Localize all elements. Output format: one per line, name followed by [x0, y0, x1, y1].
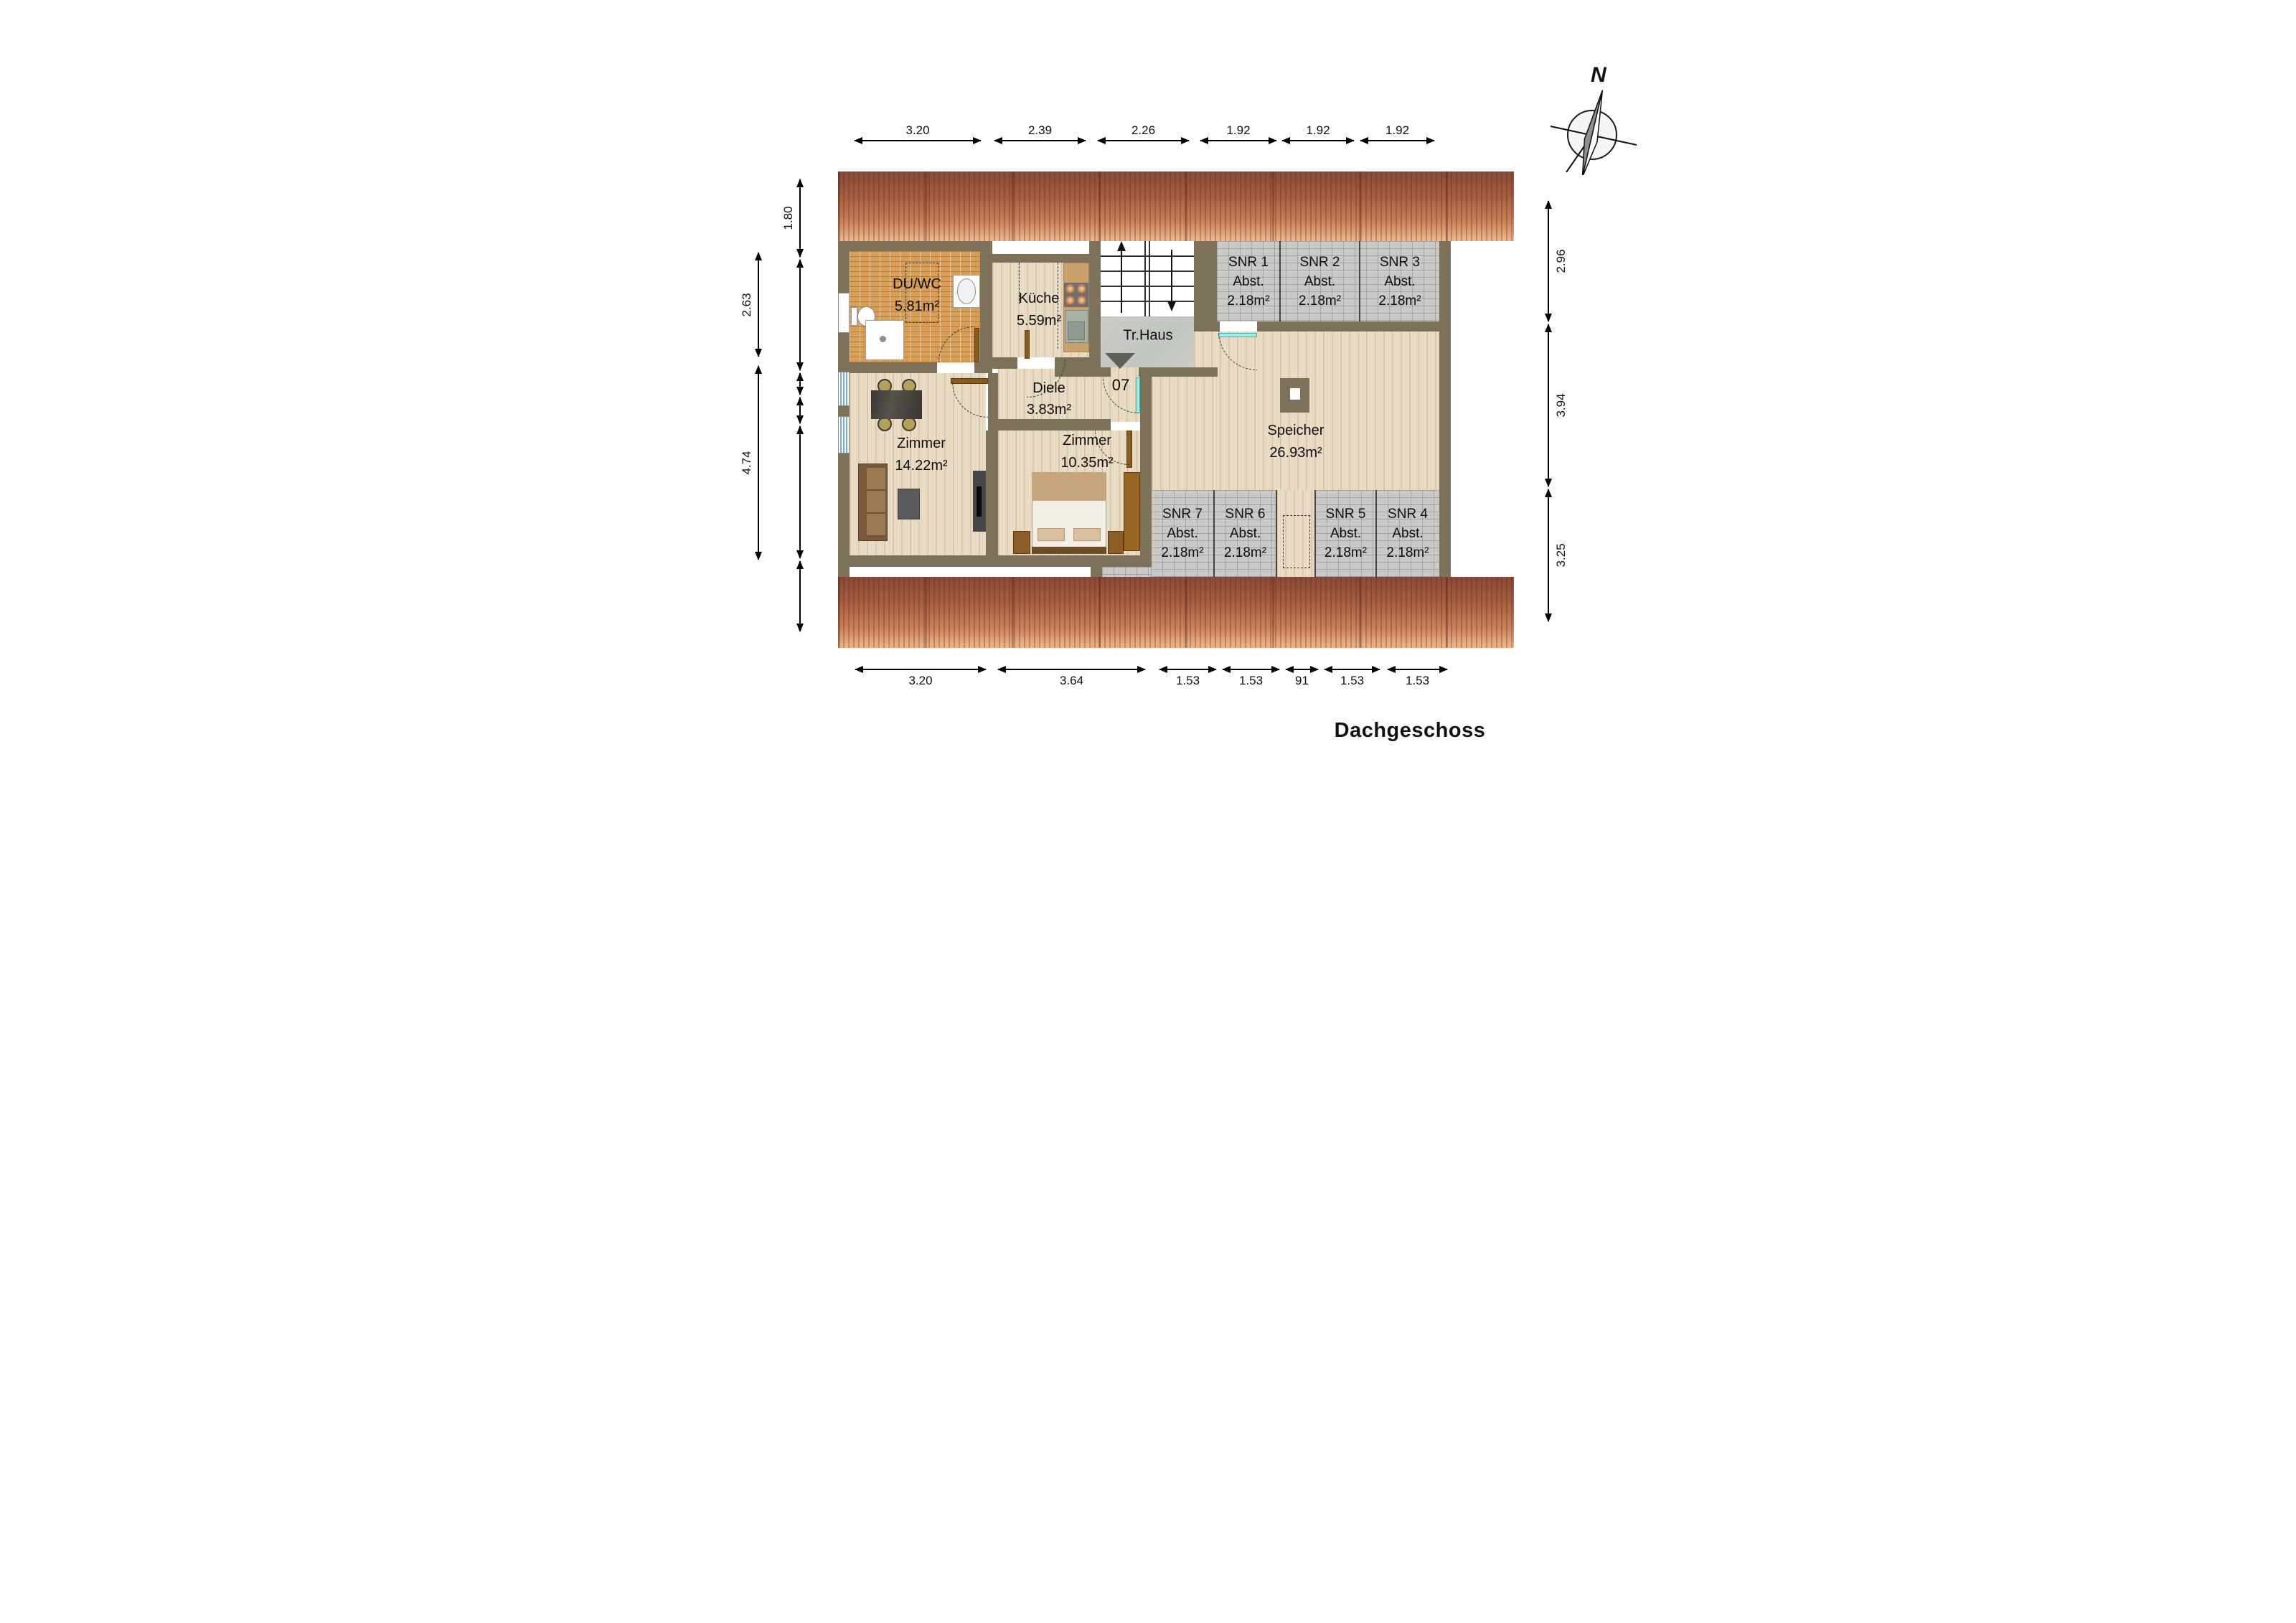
shower-drain [880, 336, 886, 342]
wall-duwc-bottom-a [838, 362, 937, 373]
stove-burner [1065, 284, 1075, 293]
stair-up-arrow-line [1121, 250, 1122, 313]
room-name: DU/WC [893, 273, 941, 296]
wall-stair-bottom-a [1089, 367, 1111, 377]
wall-outer-right [1439, 241, 1451, 577]
dim-bottom-2: 3.64 [998, 669, 1145, 670]
stair-tread-line [1101, 301, 1194, 302]
wall-duwc-right [980, 241, 992, 362]
room-area: 5.59m² [1017, 310, 1061, 332]
chimney-flue [1290, 388, 1300, 400]
wardrobe [1124, 472, 1140, 551]
chair [902, 417, 916, 431]
speicher-corridor-dashed [1283, 515, 1310, 568]
dim-value: 2.96 [1554, 249, 1568, 273]
bed-pillow [1073, 528, 1101, 541]
dim-top-4: 1.92 [1200, 140, 1276, 141]
snr1-label: SNR 1 Abst. 2.18m² [1217, 241, 1280, 321]
wall-stair-right [1194, 241, 1217, 331]
dim-top-2: 2.39 [994, 140, 1086, 141]
wall-kueche-bottom-a [992, 357, 1017, 369]
dim-value: 3.20 [908, 674, 932, 688]
wall-outer-left [838, 241, 850, 577]
room-name: Zimmer [895, 433, 947, 455]
room-label-trhaus: Tr.Haus [1123, 325, 1172, 347]
wall-top-left [838, 241, 992, 251]
snr-type: Abst. [1230, 524, 1261, 543]
room-area: 10.35m² [1060, 452, 1113, 474]
wall-kueche-top [992, 254, 1089, 263]
wall-zimmer-mid [986, 431, 998, 567]
speicher-west-arm-floor [1152, 377, 1217, 490]
dim-value: 91 [1295, 674, 1309, 688]
wall-zimmer-bottom [838, 555, 1152, 567]
roof-band-bottom [838, 577, 1514, 648]
sofa-cushions [867, 468, 885, 537]
wall-duwc-bottom-b [974, 362, 992, 373]
wall-kueche-stair [1089, 241, 1101, 377]
dim-left-inner-2 [799, 260, 801, 370]
dim-value: 1.53 [1340, 674, 1364, 688]
room-label-speicher: Speicher 26.93m² [1268, 420, 1325, 464]
stair-up-arrow-head [1117, 241, 1126, 251]
snr4-label: SNR 4 Abst. 2.18m² [1376, 490, 1439, 577]
apartment-number-label: 07 [1112, 376, 1129, 395]
wall-stair-bottom-b [1139, 367, 1218, 377]
room-label-diele: Diele 3.83m² [1027, 377, 1071, 420]
stair-down-arrow-head [1167, 301, 1176, 311]
snr-name: SNR 2 [1300, 253, 1340, 272]
snr-name: SNR 1 [1228, 253, 1269, 272]
under-roof-strip-bottom-left [850, 567, 1091, 577]
snr7-label: SNR 7 Abst. 2.18m² [1151, 490, 1214, 577]
stair-treads [1101, 241, 1194, 316]
dim-value: 2.39 [1028, 123, 1052, 138]
bed-pillow [1038, 528, 1065, 541]
dim-right-2: 3.94 [1548, 324, 1549, 486]
dim-left-inner-5 [799, 426, 801, 558]
wall-zimmer2-top [988, 419, 1111, 431]
dim-left-outer-1: 2.63 [758, 253, 759, 357]
dim-bottom-4: 1.53 [1223, 669, 1279, 670]
snr-area: 2.18m² [1227, 291, 1269, 311]
wall-snr1-bottom-a [1217, 321, 1220, 331]
dim-left-inner-4 [799, 397, 801, 423]
kueche-door-leaf [1025, 330, 1030, 359]
dim-value: 1.53 [1239, 674, 1263, 688]
tv-screen [977, 486, 982, 517]
toilet-cistern [851, 307, 857, 326]
snr-name: SNR 3 [1380, 253, 1420, 272]
dim-value: 3.20 [905, 123, 929, 138]
window-zimmer1-upper [838, 372, 850, 406]
room-label-kueche: Küche 5.59m² [1017, 288, 1061, 332]
snr-name: SNR 7 [1162, 504, 1203, 524]
snr-area: 2.18m² [1161, 543, 1203, 563]
snr3-label: SNR 3 Abst. 2.18m² [1360, 241, 1439, 321]
bed-blanket [1032, 472, 1106, 501]
dim-value: 1.92 [1306, 123, 1330, 138]
washbasin-bowl [957, 278, 976, 304]
dim-left-inner-3 [799, 373, 801, 395]
stair-down-arrow-line [1171, 250, 1172, 303]
room-name: Speicher [1268, 420, 1325, 442]
snr-name: SNR 4 [1388, 504, 1428, 524]
snr-area: 2.18m² [1299, 291, 1341, 311]
dim-top-6: 1.92 [1360, 140, 1434, 141]
dim-bottom-7: 1.53 [1388, 669, 1447, 670]
snr-type: Abst. [1392, 524, 1423, 543]
snr-area: 2.18m² [1325, 543, 1367, 563]
dim-value: 3.25 [1554, 543, 1568, 567]
dim-bottom-1: 3.20 [855, 669, 986, 670]
room-label-duwc: DU/WC 5.81m² [893, 273, 941, 318]
wall-corner-z1 [988, 373, 998, 419]
dim-bottom-5: 91 [1286, 669, 1318, 670]
strip-above-kitchen [992, 241, 1089, 254]
room-name: Zimmer [1060, 430, 1113, 452]
dim-right-3: 3.25 [1548, 489, 1549, 621]
snr-name: SNR 6 [1225, 504, 1266, 524]
dim-value: 3.64 [1060, 674, 1083, 688]
dim-top-5: 1.92 [1282, 140, 1354, 141]
coffee-table [898, 489, 920, 519]
compass-rose: N [1546, 63, 1647, 175]
dining-table [871, 390, 922, 419]
chair [878, 417, 892, 431]
window-zimmer1-lower [838, 416, 850, 453]
stove-burner [1065, 296, 1075, 305]
dim-value: 2.63 [740, 293, 754, 316]
dim-left-inner-6 [799, 561, 801, 631]
dim-top-1: 3.20 [855, 140, 981, 141]
bed-headboard [1032, 547, 1106, 554]
stair-direction-triangle [1105, 353, 1135, 369]
dim-left-outer-2: 4.74 [758, 366, 759, 560]
stair-tread-line [1101, 286, 1194, 287]
stair-tread-line [1101, 255, 1194, 257]
snr-area: 2.18m² [1386, 543, 1429, 563]
snr-type: Abst. [1167, 524, 1198, 543]
nightstand [1108, 531, 1124, 554]
dim-value: 1.92 [1226, 123, 1250, 138]
dim-top-3: 2.26 [1098, 140, 1189, 141]
dim-bottom-3: 1.53 [1159, 669, 1216, 670]
dim-value: 1.53 [1406, 674, 1429, 688]
dim-value: 2.26 [1131, 123, 1155, 138]
room-name: Tr.Haus [1123, 328, 1172, 344]
dim-right-1: 2.96 [1548, 201, 1549, 321]
duwc-door-leaf [974, 328, 979, 362]
kitchen-sink-basin [1068, 321, 1085, 340]
snr-type: Abst. [1384, 272, 1415, 291]
window-duwc [838, 293, 850, 333]
dim-value: 4.74 [740, 451, 754, 474]
dim-value: 3.94 [1554, 393, 1568, 417]
wall-snr1-bottom-b [1257, 321, 1439, 331]
tile-patch-bottom [1102, 567, 1151, 577]
stove-burner [1077, 284, 1086, 293]
page-title: Dachgeschoss [1291, 719, 1528, 743]
snr2-label: SNR 2 Abst. 2.18m² [1281, 241, 1359, 321]
room-name: Küche [1017, 288, 1061, 310]
room-area: 5.81m² [893, 296, 941, 318]
room-area: 3.83m² [1027, 399, 1071, 420]
dim-value: 1.53 [1176, 674, 1200, 688]
stove-burner [1077, 296, 1086, 305]
wall-speicher-west [1140, 377, 1152, 567]
roof-band-top [838, 171, 1514, 241]
dim-value: 1.92 [1385, 123, 1409, 138]
stair-flight-divider [1149, 241, 1150, 316]
floor-plan-canvas: DU/WC 5.81m² Küche 5.59m² Tr.Haus Diele … [574, 0, 1722, 812]
nightstand [1013, 531, 1030, 554]
snr-type: Abst. [1304, 272, 1335, 291]
dim-bottom-6: 1.53 [1325, 669, 1380, 670]
room-label-zimmer2: Zimmer 10.35m² [1060, 430, 1113, 474]
room-name: Diele [1027, 377, 1071, 399]
room-area: 14.22m² [895, 455, 947, 477]
snr-area: 2.18m² [1224, 543, 1266, 563]
snr5-label: SNR 5 Abst. 2.18m² [1315, 490, 1376, 577]
snr-type: Abst. [1233, 272, 1264, 291]
snr6-label: SNR 6 Abst. 2.18m² [1214, 490, 1276, 577]
room-area: 26.93m² [1268, 442, 1325, 464]
wall-stub-bottom [1091, 567, 1102, 577]
snr-area: 2.18m² [1378, 291, 1421, 311]
dim-left-inner-1: 1.80 [799, 179, 801, 257]
snr-name: SNR 5 [1326, 504, 1366, 524]
compass-north-label: N [1591, 63, 1607, 87]
stair-flight-divider [1144, 241, 1146, 316]
room-label-zimmer1: Zimmer 14.22m² [895, 433, 947, 477]
snr-type: Abst. [1330, 524, 1361, 543]
stair-tread-line [1101, 270, 1194, 272]
dim-value: 1.80 [781, 206, 796, 230]
